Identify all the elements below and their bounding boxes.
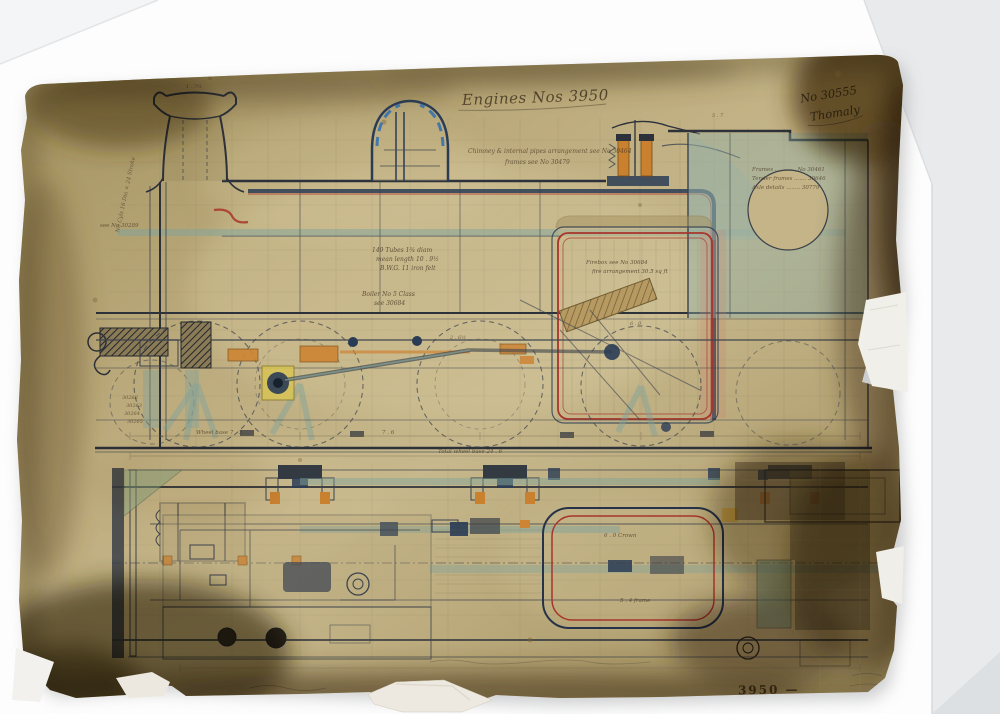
crosshead-orange xyxy=(228,349,258,361)
dim-label-b: 5 . 7 xyxy=(712,113,724,119)
buffer-beam xyxy=(100,328,168,356)
see-ref-note: see No 30289 xyxy=(100,223,139,229)
cylinder-block xyxy=(181,322,211,368)
firebox-note-1: Firebox see No 30684 xyxy=(585,260,648,266)
plan-base-label: 5 . 4 frame xyxy=(620,598,651,604)
dim-label-d: 6 . 0 xyxy=(630,321,642,327)
coupling-rod xyxy=(470,350,612,352)
waterline-wash xyxy=(118,229,558,236)
ref-note-1: Frames ............ No 30461 xyxy=(751,167,825,173)
parts-list-4: 30265 xyxy=(127,419,143,425)
tubes-note-3: B.W.G. 11 iron felt xyxy=(379,265,436,272)
brass-column xyxy=(618,140,629,176)
cab-spectacle-window xyxy=(748,170,828,250)
boiler-note-2: see 30684 xyxy=(374,300,405,307)
wheelbase-label-1: Wheel base 7 . 3 xyxy=(196,430,243,436)
parts-list-1: 30262 xyxy=(122,395,138,401)
steam-dome xyxy=(372,101,448,181)
boiler-note-1: Boiler No 5 Class xyxy=(361,291,415,298)
parts-list-3: 30264 xyxy=(124,411,140,417)
tubes-note-1: 149 Tubes 1¾ diam xyxy=(372,247,432,254)
plan-crown-label: 6 . 0 Crown xyxy=(604,533,637,539)
firebox-note-2: fire arrangement 30.5 sq ft xyxy=(591,269,669,275)
tubes-note-2: mean length 10 . 9½ xyxy=(376,256,439,263)
pink-hatch-column xyxy=(700,230,726,418)
ref-note-2: Tender frames ....... 30646 xyxy=(752,176,826,182)
product-photo-locomotive-drawing: Engines Nos 3950 No 30555 Thomaly Chimne… xyxy=(0,0,1000,714)
dim-label-c: 2 . 6½ xyxy=(449,334,466,341)
wheelbase-label-3: Total wheel base 24 . 6 xyxy=(438,449,503,455)
wheelbase-label-2: 7 . 6 xyxy=(382,430,395,436)
note-arrangement-2: frames see No 30479 xyxy=(504,159,570,166)
ref-note-3: Axle details ........ 30779 xyxy=(751,185,820,191)
parts-list-2: 30263 xyxy=(126,403,142,409)
note-arrangement-1: Chimney & internal pipes arrangement see… xyxy=(468,148,632,155)
brass-column xyxy=(641,140,652,176)
artwork-canvas: Engines Nos 3950 No 30555 Thomaly Chimne… xyxy=(0,0,1000,714)
